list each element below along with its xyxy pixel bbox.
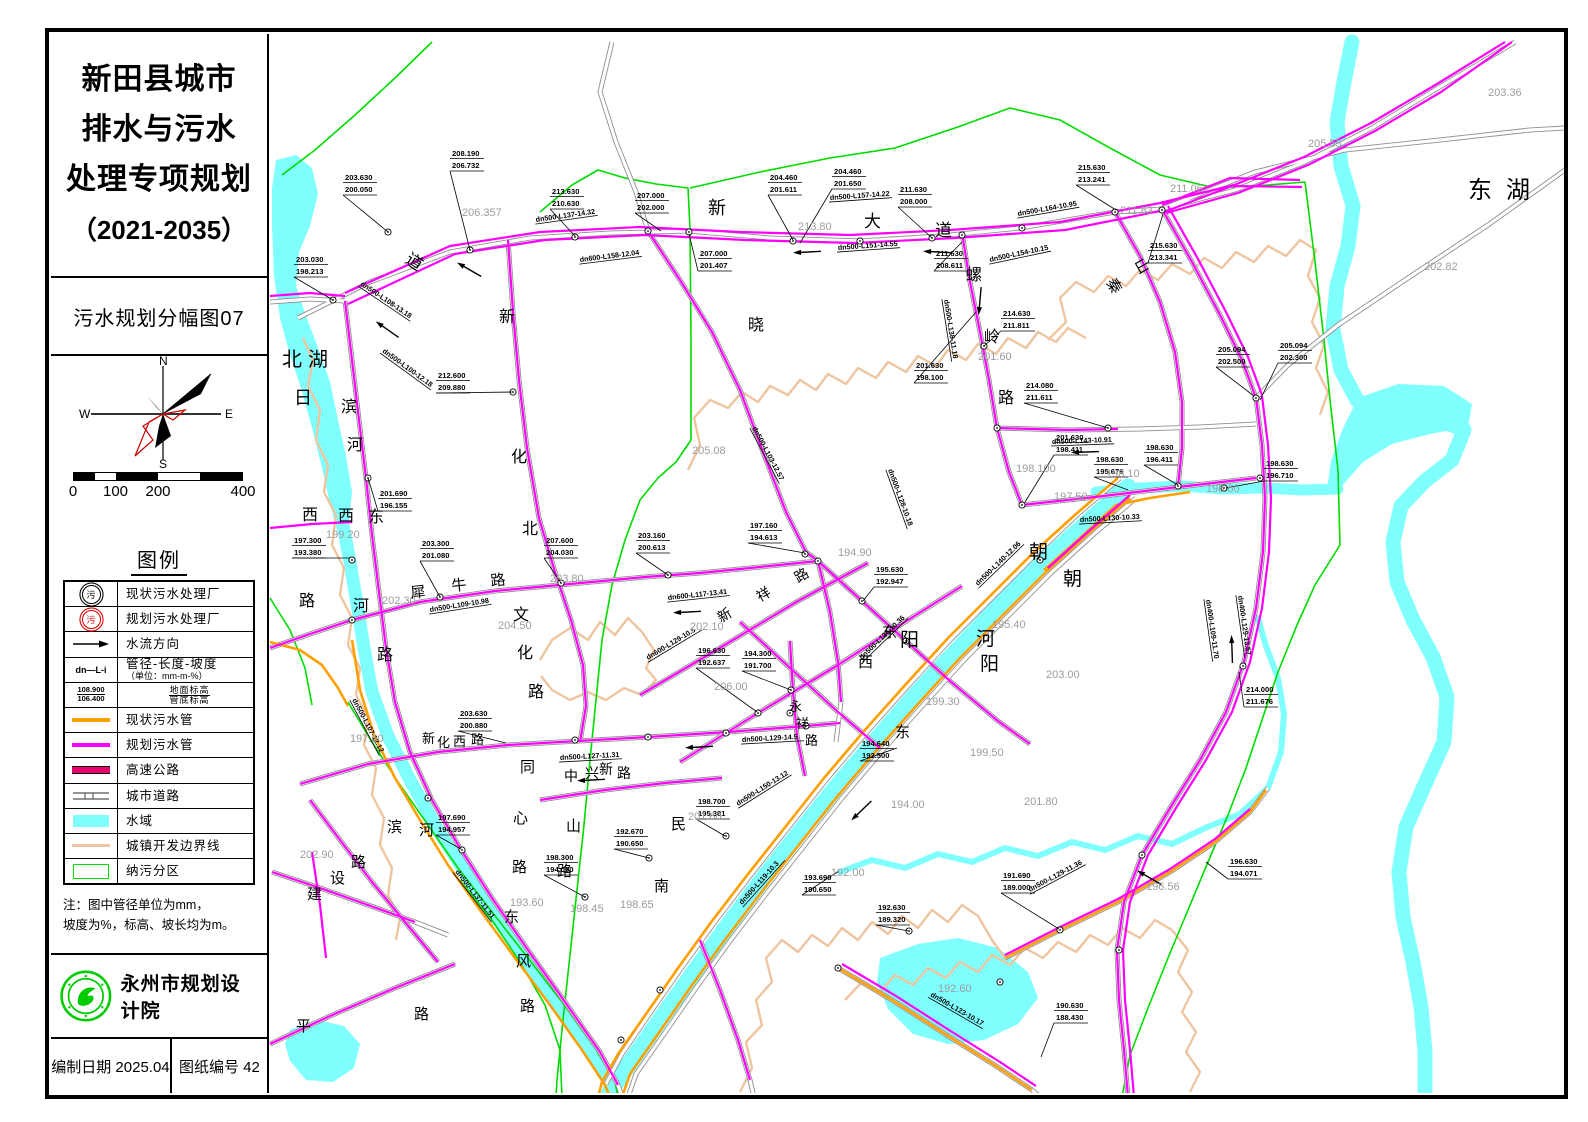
manhole-node-dot <box>1059 929 1061 931</box>
pipe-annotation: dn500-L128-10.18 <box>886 467 916 529</box>
spot-elevation: 205.08 <box>692 445 726 457</box>
pipe-annotation: dn500-L129-14.5 <box>741 732 804 744</box>
place-name: 祥 <box>796 716 809 731</box>
svg-text:191.700: 191.700 <box>744 661 771 670</box>
dev-boundary-swatch <box>72 844 110 847</box>
road-casing <box>508 240 586 742</box>
legend-row-existing-pipe: 现状污水管 <box>65 708 253 733</box>
svg-text:193.380: 193.380 <box>294 548 321 557</box>
spot-elevation: 198.100 <box>1016 463 1056 475</box>
drawing-sheet: 新田县城市 排水与污水 处理专项规划 （2021-2035） 污水规划分幅图07… <box>0 0 1588 1122</box>
pipe-annotation: dn600-L158-12.04 <box>578 247 642 264</box>
place-name: 犀 <box>410 584 427 602</box>
svg-text:201.407: 201.407 <box>700 261 727 270</box>
elevation-pair-label: 201.690196.155 <box>368 478 412 511</box>
svg-text:192.637: 192.637 <box>698 658 725 667</box>
place-name: 祥 <box>753 584 773 605</box>
manhole-node-dot <box>804 553 806 555</box>
place-name: 河 <box>353 597 369 615</box>
place-name: 民 <box>671 816 686 833</box>
manhole-node-dot <box>659 989 661 991</box>
svg-text:200.050: 200.050 <box>345 185 372 194</box>
svg-text:198.630: 198.630 <box>1266 459 1293 468</box>
place-name: 新 <box>708 198 726 218</box>
svg-text:207.000: 207.000 <box>700 249 727 258</box>
road-casing <box>345 301 622 1093</box>
place-name: 岭 <box>984 328 1000 346</box>
spot-elevation: 206.00 <box>714 681 748 693</box>
manhole-node-dot <box>725 835 727 837</box>
compass-s: S <box>159 457 167 468</box>
svg-text:204.460: 204.460 <box>834 167 861 176</box>
legend-row-existing-plant: 污 现状污水处理厂 <box>65 582 253 607</box>
svg-text:200.613: 200.613 <box>638 543 665 552</box>
spot-elevation: 198.60 <box>1206 483 1240 495</box>
institute-logo <box>59 965 113 1027</box>
svg-text:198.630: 198.630 <box>1096 455 1123 464</box>
spot-elevation: 192.60 <box>938 983 972 995</box>
planned-sewage-pipe <box>345 301 618 1085</box>
svg-text:203.030: 203.030 <box>296 255 323 264</box>
svg-text:194.071: 194.071 <box>1230 869 1258 878</box>
title-year-line: （2021-2035） <box>71 205 247 255</box>
place-name: 路 <box>351 854 366 871</box>
svg-text:211.611: 211.611 <box>1026 393 1053 402</box>
svg-text:201.630: 201.630 <box>1056 433 1083 442</box>
planned-sewage-pipe <box>508 240 586 742</box>
existing-sewage-pipe <box>270 642 348 706</box>
drawing-notes: 注：图中管径单位为mm， 坡度为%，标高、坡长均为m。 <box>51 885 267 953</box>
legend: 污 现状污水处理厂 污 规划污水处理厂 水流方向 dn—L-i 管径-长度-坡度… <box>63 580 255 885</box>
spot-elevation: 211.83 <box>1120 205 1153 217</box>
svg-text:208.611: 208.611 <box>936 261 964 270</box>
svg-text:194.300: 194.300 <box>744 649 771 658</box>
svg-text:196.630: 196.630 <box>1230 857 1257 866</box>
sheet-number-cell: 图纸编号 42 <box>170 1039 267 1093</box>
svg-text:214.080: 214.080 <box>1026 381 1053 390</box>
svg-text:204.030: 204.030 <box>546 548 573 557</box>
compass-w: W <box>79 407 91 421</box>
place-name: 中 <box>564 768 578 784</box>
river <box>1333 42 1464 1093</box>
svg-text:214.630: 214.630 <box>1003 309 1030 318</box>
legend-row-sewage-zone: 纳污分区 <box>65 859 253 883</box>
spot-elevation: 201.60 <box>978 351 1012 363</box>
svg-text:207.000: 207.000 <box>637 191 664 200</box>
spot-elevation: 203.80 <box>550 573 584 585</box>
manhole-node-dot <box>620 1039 622 1041</box>
spot-elevation: 197.60 <box>350 733 384 745</box>
place-name: 路 <box>471 732 484 747</box>
svg-text:dn500-L129-11.36: dn500-L129-11.36 <box>1027 858 1084 894</box>
spot-elevation: 199.30 <box>926 696 960 708</box>
manhole-node-dot <box>647 736 649 738</box>
place-name: 西 <box>453 734 466 749</box>
elevation-pair-label: 196.630194.071 <box>1206 857 1262 879</box>
spot-elevation: 194.90 <box>838 547 872 559</box>
svg-text:213.630: 213.630 <box>552 187 579 196</box>
svg-text:214.000: 214.000 <box>1246 685 1273 694</box>
spot-elevation: 205.55 <box>1308 138 1342 150</box>
svg-text:192.630: 192.630 <box>878 903 905 912</box>
title-line: 排水与污水 <box>82 105 237 155</box>
place-name: 河 <box>347 436 363 454</box>
place-name: 道 <box>935 221 952 240</box>
elevation-pair-label: 203.630200.050 <box>343 173 388 232</box>
spot-elevation: 192.00 <box>831 867 865 879</box>
place-name: 朝 <box>1063 568 1082 590</box>
place-name: 平 <box>296 1018 311 1035</box>
pipe-annotation: dn500-L100-12.18 <box>380 346 436 390</box>
svg-text:189.000: 189.000 <box>1003 883 1030 892</box>
pipe-annotation: dn500-L154-10.15 <box>988 242 1051 264</box>
institute-name: 永州市规划设计院 <box>121 969 259 1023</box>
manhole-node-dot <box>574 236 576 238</box>
place-name: 山 <box>566 818 581 835</box>
elevation-pair-label: 207.000202.000 <box>635 191 669 231</box>
elevation-pair-label: 215.630213.241 <box>1076 163 1116 210</box>
place-name: 东 <box>1468 177 1492 204</box>
legend-row-flow-direction: 水流方向 <box>65 632 253 657</box>
manhole-node-dot <box>1259 477 1261 479</box>
svg-text:dn500-L164-10.95: dn500-L164-10.95 <box>1017 199 1078 218</box>
svg-text:201.690: 201.690 <box>380 489 407 498</box>
svg-text:189.320: 189.320 <box>878 915 905 924</box>
spot-elevation: 198.10 <box>1106 468 1140 480</box>
place-name: 文 <box>513 606 529 624</box>
svg-text:198.213: 198.213 <box>296 267 323 276</box>
svg-text:195.630: 195.630 <box>876 565 903 574</box>
place-name: 晓 <box>748 316 764 334</box>
place-name: 路 <box>998 389 1014 407</box>
place-name: 湖 <box>308 348 328 371</box>
elevation-pair-label: 204.460201.611 <box>768 173 802 240</box>
place-name: 路 <box>377 646 393 664</box>
svg-text:190.630: 190.630 <box>1056 1001 1083 1010</box>
manhole-node-dot <box>861 600 863 602</box>
manhole-node-dot <box>1161 209 1163 211</box>
legend-row-highway: 高速公路 <box>65 758 253 783</box>
svg-text:211.676: 211.676 <box>1246 697 1273 706</box>
svg-text:191.690: 191.690 <box>1003 871 1030 880</box>
svg-text:dn600-L117-13.41: dn600-L117-13.41 <box>667 587 727 602</box>
svg-text:213.241: 213.241 <box>1078 175 1106 184</box>
water-swatch <box>73 815 109 827</box>
place-name: 滨 <box>341 398 357 416</box>
place-name: 牛 <box>451 577 468 595</box>
spot-elevation: 199.50 <box>970 747 1004 759</box>
spot-elevation: 211.06 <box>1170 183 1203 195</box>
spot-elevation: 202.10 <box>690 621 724 633</box>
svg-text:196.411: 196.411 <box>1146 455 1174 464</box>
manhole-node-dot <box>725 732 727 734</box>
place-name: 新 <box>499 308 515 326</box>
elevation-pair-label: 208.190206.732 <box>450 149 484 250</box>
spot-elevation: 202.82 <box>1424 261 1458 273</box>
svg-text:dn500-L138-11.18: dn500-L138-11.18 <box>942 299 960 359</box>
svg-text:211.811: 211.811 <box>1003 321 1030 330</box>
svg-text:202.000: 202.000 <box>637 203 664 212</box>
svg-text:205.094: 205.094 <box>1280 341 1308 350</box>
planned-pipe-swatch <box>72 743 110 747</box>
place-name: 滨 <box>387 819 402 836</box>
place-name: 朝 <box>1029 541 1048 563</box>
svg-text:194.640: 194.640 <box>862 739 889 748</box>
legend-row-planned-pipe: 规划污水管 <box>65 733 253 758</box>
place-name: 路 <box>617 765 631 781</box>
spot-elevation: 198.45 <box>570 903 604 915</box>
place-name: 北 <box>282 348 302 371</box>
svg-text:dn500-L100-12.18: dn500-L100-12.18 <box>381 346 435 389</box>
scale-tick: 100 <box>103 483 128 500</box>
place-name: 路 <box>490 572 507 590</box>
place-name: 河 <box>976 628 995 650</box>
svg-text:194.957: 194.957 <box>438 825 465 834</box>
road-surface <box>1256 170 1564 398</box>
sewage-zone-boundary <box>270 598 312 705</box>
compass-n: N <box>159 356 168 368</box>
spot-elevation: 201.60 <box>688 811 722 823</box>
spot-elevation: 202.90 <box>300 849 334 861</box>
place-name: 路 <box>414 1006 429 1023</box>
elevation-pair-label: 201.630198.100 <box>914 312 976 383</box>
manhole-node-dot <box>1118 949 1120 951</box>
place-name: 东 <box>504 909 519 926</box>
elevation-pair-label: 198.630196.411 <box>1144 443 1178 485</box>
place-name: 化 <box>437 735 450 750</box>
legend-row-dev-boundary: 城镇开发边界线 <box>65 834 253 859</box>
development-boundary <box>1048 240 1328 415</box>
svg-text:203.160: 203.160 <box>638 531 665 540</box>
road-surface <box>298 209 1162 318</box>
place-name: 西 <box>302 507 318 524</box>
compass-e: E <box>225 407 233 421</box>
svg-text:dn500-L103-12.57: dn500-L103-12.57 <box>750 425 786 482</box>
elevation-pair-label: 190.630188.430 <box>1041 1001 1088 1057</box>
place-name: 日 <box>294 388 312 408</box>
svg-text:203.630: 203.630 <box>345 173 372 182</box>
flow-arrow <box>1229 635 1235 663</box>
scale-tick: 400 <box>230 483 255 500</box>
pipe-annotation: dn600-L117-13.41 <box>666 587 730 603</box>
highway-swatch <box>72 766 110 774</box>
flow-arrow <box>849 799 873 822</box>
svg-text:188.430: 188.430 <box>1056 1013 1083 1022</box>
road-surface <box>648 231 818 561</box>
date-cell: 编制日期 2025.04 <box>51 1039 170 1093</box>
svg-text:213.341: 213.341 <box>1150 253 1178 262</box>
planned-sewage-pipe <box>312 852 326 958</box>
flow-arrow <box>673 609 701 616</box>
place-name: 新 <box>599 761 613 777</box>
spot-elevation: 203.36 <box>1488 87 1522 99</box>
manhole-node-dot <box>1114 211 1116 213</box>
place-name: 湖 <box>1506 177 1530 204</box>
pipe-annotation: dn500-L164-10.95 <box>1016 198 1080 218</box>
spot-elevation: 199.20 <box>326 529 360 541</box>
manhole-node-dot <box>1021 504 1023 506</box>
flow-arrow <box>456 260 483 279</box>
svg-text:194.613: 194.613 <box>750 533 777 542</box>
place-name: 西 <box>858 654 873 671</box>
elevation-pair-label: 214.080211.611 <box>1024 381 1108 428</box>
svg-text:190.650: 190.650 <box>616 839 643 848</box>
place-name: 螺 <box>966 266 982 284</box>
svg-text:196.630: 196.630 <box>698 646 725 655</box>
svg-text:206.732: 206.732 <box>452 161 479 170</box>
elevation-pair-label: 212.600209.880 <box>436 371 513 393</box>
institute-row: 永州市规划设计院 <box>51 953 267 1037</box>
title-line: 处理专项规划 <box>66 155 252 205</box>
svg-text:197.300: 197.300 <box>294 536 321 545</box>
svg-text:203.300: 203.300 <box>422 539 449 548</box>
place-name: 路 <box>528 683 544 701</box>
svg-text:dn500-L128-10.18: dn500-L128-10.18 <box>886 468 915 527</box>
place-name: 东 <box>882 624 897 641</box>
place-name: 新 <box>422 731 435 746</box>
place-name: 阳 <box>900 629 919 651</box>
manhole-node-dot <box>837 967 839 969</box>
manhole-node-dot <box>999 981 1001 983</box>
legend-title: 图例 <box>51 548 267 578</box>
svg-text:193.690: 193.690 <box>804 873 831 882</box>
place-name: 心 <box>513 810 528 827</box>
road-casing <box>648 231 818 561</box>
scale-bar: 0 100 200 400 <box>73 472 243 501</box>
spot-elevation: 201.80 <box>1024 796 1058 808</box>
place-name: 北 <box>522 520 538 538</box>
sheet-subtitle: 污水规划分幅图07 <box>51 278 267 356</box>
manhole-node-dot <box>427 797 429 799</box>
legend-row-planned-plant: 污 规划污水处理厂 <box>65 607 253 632</box>
svg-text:dn500-L150-13.12: dn500-L150-13.12 <box>734 768 790 807</box>
place-name: 风 <box>516 953 531 970</box>
place-name: 西 <box>338 508 354 525</box>
spot-elevation: 197.50 <box>1054 491 1088 503</box>
svg-text:212.600: 212.600 <box>438 371 465 380</box>
svg-text:dn400-L109-11.70: dn400-L109-11.70 <box>1204 599 1221 659</box>
map-area: dn500-L157-14.22dn500-L151-14.55dn500-L1… <box>269 34 1564 1093</box>
spot-elevation: 194.00 <box>891 799 925 811</box>
svg-text:198.411: 198.411 <box>1056 445 1084 454</box>
spot-elevation: 203.00 <box>1046 669 1080 681</box>
pipe-spec-symbol: dn—L-i <box>76 665 107 675</box>
place-name: 化 <box>517 644 533 662</box>
svg-text:197.690: 197.690 <box>438 813 465 822</box>
compass-rose: N W E S <box>51 356 267 468</box>
manhole-node-dot <box>574 739 576 741</box>
svg-text:201.611: 201.611 <box>770 185 798 194</box>
drawing-title: 新田县城市 排水与污水 处理专项规划 （2021-2035） <box>51 34 267 278</box>
svg-text:211.630: 211.630 <box>900 185 927 194</box>
pipe-annotation: dn500-L130-10.33 <box>1079 512 1142 524</box>
place-name: 阳 <box>980 653 999 675</box>
manhole-node-dot <box>1255 397 1257 399</box>
elevation-pair-label: 195.630192.947 <box>863 565 908 601</box>
place-name: 化 <box>511 448 527 466</box>
existing-pipe-swatch <box>72 718 110 722</box>
place-name: 路 <box>299 592 315 610</box>
svg-text:203.630: 203.630 <box>460 709 487 718</box>
manhole-node-dot <box>351 619 353 621</box>
manhole-node-dot <box>757 712 759 714</box>
place-name: 永 <box>789 699 802 714</box>
svg-text:201.080: 201.080 <box>422 551 449 560</box>
scale-tick: 200 <box>145 483 170 500</box>
compass-scale-panel: N W E S 0 100 200 400 <box>51 356 267 548</box>
svg-text:192.670: 192.670 <box>616 827 643 836</box>
place-name: 南 <box>654 878 669 895</box>
planned-sewage-pipe <box>648 231 818 561</box>
place-name: 路 <box>805 733 818 748</box>
place-name: 路 <box>512 859 527 876</box>
sewage-zone-boundary <box>282 42 432 175</box>
pipe-annotation: dn500-L150-13.12 <box>733 767 791 808</box>
manhole-node-dot <box>1177 485 1179 487</box>
place-name: 建 <box>307 886 322 903</box>
manhole-node-dot <box>1141 854 1143 856</box>
manhole-node-dot <box>1242 665 1244 667</box>
svg-text:209.880: 209.880 <box>438 383 465 392</box>
elevation-pair-label: 192.670190.650 <box>614 827 649 858</box>
svg-text:dn600-L158-12.04: dn600-L158-12.04 <box>579 248 640 264</box>
elevation-pair-label: 194.300191.700 <box>742 649 791 690</box>
place-name: 路 <box>791 565 811 586</box>
road-surface <box>508 240 586 742</box>
place-name: 河 <box>419 822 434 839</box>
spot-elevation: 196.56 <box>1146 881 1180 893</box>
spot-elevation: 195.40 <box>992 619 1026 631</box>
pipe-annotation: dn500-L138-11.18 <box>942 298 961 362</box>
manhole-node-dot <box>647 230 649 232</box>
place-name: 东 <box>368 508 384 526</box>
manhole-node-dot <box>688 231 690 233</box>
flow-arrow-icon <box>71 638 111 650</box>
elevation-pair-label: 211.630208.000 <box>898 185 932 238</box>
planned-plant-icon: 污 <box>82 610 101 629</box>
sewage-zone-swatch <box>73 864 109 879</box>
svg-text:192.947: 192.947 <box>876 577 903 586</box>
title-line: 新田县城市 <box>82 55 237 105</box>
planned-sewage-pipe <box>1123 396 1271 1093</box>
elevation-pair-label: 203.300201.080 <box>420 539 454 597</box>
manhole-node-dot <box>996 427 998 429</box>
manhole-node-dot <box>817 560 819 562</box>
map-canvas: dn500-L157-14.22dn500-L151-14.55dn500-L1… <box>269 34 1564 1093</box>
pipe-annotation: dn500-L129-11.36 <box>1026 857 1086 895</box>
title-block-sidebar: 新田县城市 排水与污水 处理专项规划 （2021-2035） 污水规划分幅图07… <box>51 34 269 1093</box>
manhole-node-dot <box>351 559 353 561</box>
svg-text:210.630: 210.630 <box>552 199 579 208</box>
svg-text:208.190: 208.190 <box>452 149 479 158</box>
svg-text:198.630: 198.630 <box>1146 443 1173 452</box>
water-body <box>272 155 352 540</box>
place-name: 同 <box>520 759 535 776</box>
svg-text:202.500: 202.500 <box>1218 357 1245 366</box>
place-name: 兴 <box>585 765 599 781</box>
svg-text:201.650: 201.650 <box>834 179 861 188</box>
legend-row-pipe-spec: dn—L-i 管径-长度-坡度（单位：mm-m-%） <box>65 658 253 683</box>
place-name: 路 <box>557 863 572 880</box>
svg-text:196.710: 196.710 <box>1266 471 1293 480</box>
place-name: 路 <box>520 998 535 1015</box>
pipe-annotation: dn500-L103-12.57 <box>750 424 788 484</box>
spot-elevation: 198.65 <box>620 899 654 911</box>
svg-text:198.700: 198.700 <box>698 797 725 806</box>
legend-row-urban-road: 城市道路 <box>65 784 253 809</box>
road-surface <box>345 301 622 1093</box>
flow-arrow <box>793 249 821 256</box>
